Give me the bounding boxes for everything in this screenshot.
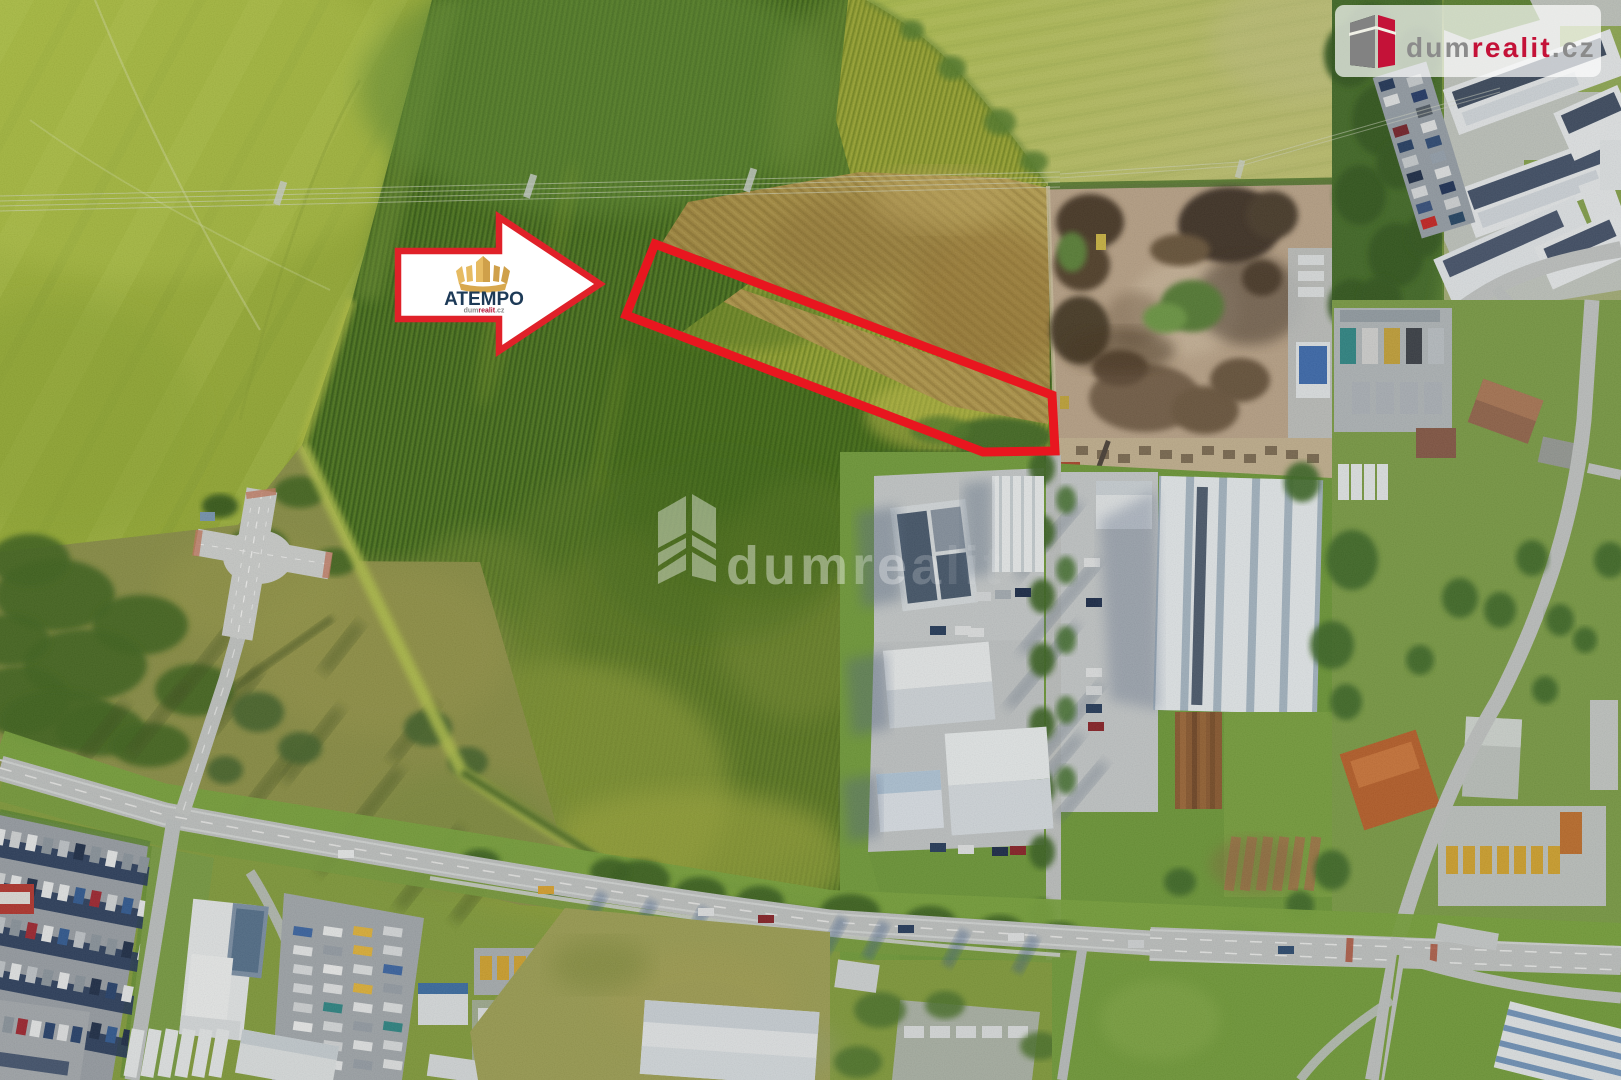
- svg-text:dumrealit.cz: dumrealit.cz: [1406, 32, 1596, 63]
- svg-text:dumrealit.cz: dumrealit.cz: [464, 308, 505, 315]
- svg-text:dumrealit: dumrealit: [726, 536, 1005, 596]
